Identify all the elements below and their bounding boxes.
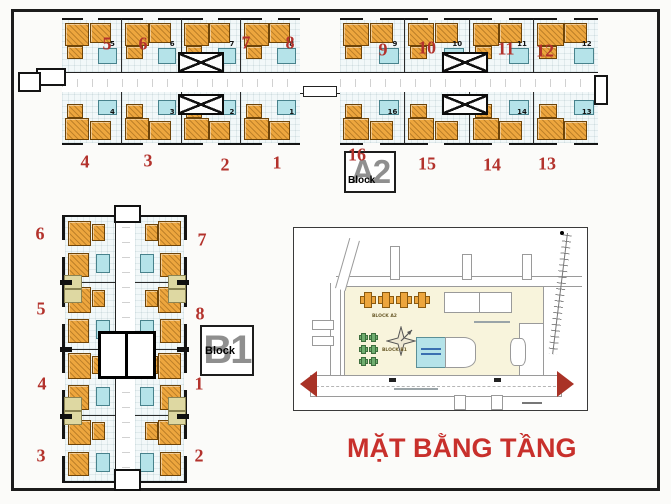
furniture-block — [209, 121, 230, 140]
apartment-number-annotation: 7 — [242, 33, 251, 54]
furniture-block — [158, 353, 181, 378]
tiny-text-bar — [474, 321, 510, 323]
stair-core — [442, 52, 488, 73]
building-cross-shape — [414, 292, 430, 308]
a2-connector-corridor — [300, 72, 340, 94]
a2-left-end-structure — [18, 72, 41, 92]
unit-number: 3 — [170, 109, 175, 116]
building-cross-shape — [359, 333, 368, 342]
page-title: MẶT BẰNG TẦNG — [347, 433, 576, 464]
furniture-block — [345, 104, 362, 117]
apartment-number-annotation: 3 — [144, 151, 153, 172]
apartment-number-annotation: 5 — [103, 34, 112, 55]
bathroom-area — [158, 48, 176, 64]
apartment-number-annotation: 8 — [196, 304, 205, 325]
car-mark — [389, 378, 396, 382]
apartment-number-annotation: 16 — [348, 145, 366, 166]
building-cross-shape — [369, 357, 378, 366]
apartment-number-annotation: 6 — [36, 224, 45, 245]
tiny-text-line — [421, 348, 441, 350]
block-b1-label-block-word: Block — [205, 345, 235, 357]
apartment-number-annotation: 2 — [195, 446, 204, 467]
unit-number: 10 — [452, 41, 462, 48]
furniture-block — [370, 121, 393, 140]
furniture-block — [145, 290, 158, 308]
furniture-block — [65, 118, 89, 140]
furniture-block — [410, 104, 427, 117]
unit-number: 1 — [289, 109, 294, 116]
site-building-block-a2 — [360, 290, 432, 310]
road-stub — [462, 254, 472, 280]
a2-corridor — [340, 72, 598, 94]
road-stub — [390, 246, 400, 280]
connector-room — [303, 86, 337, 97]
apartment-number-annotation: 2 — [221, 155, 230, 176]
building-cross-shape — [360, 292, 376, 308]
unit-number: 12 — [582, 41, 592, 48]
furniture-block — [160, 319, 181, 343]
road-stub — [312, 336, 334, 346]
furniture-block — [343, 118, 369, 140]
apartment-number-annotation: 4 — [81, 152, 90, 173]
apartment-number-annotation: 15 — [418, 154, 436, 175]
apartment-unit — [62, 215, 115, 282]
road-arrow-right-icon — [557, 371, 574, 397]
apartment-number-annotation: 3 — [37, 446, 46, 467]
bathroom-area — [574, 48, 594, 64]
a2-wing: 56784321 — [62, 18, 300, 145]
apartment-number-annotation: 6 — [139, 34, 148, 55]
block-a2-label-block-word: Block — [348, 175, 375, 186]
furniture-block — [269, 121, 290, 140]
site-building-block-b1 — [359, 333, 379, 367]
apartment-unit: 5 — [62, 18, 121, 72]
utility-box — [168, 289, 186, 303]
furniture-block — [126, 104, 142, 117]
top-road — [336, 276, 582, 287]
apartment-number-annotation: 7 — [198, 230, 207, 251]
wall-mark — [60, 280, 72, 285]
furniture-block — [345, 46, 362, 59]
furniture-block — [90, 121, 111, 140]
block-b1-label: B1 Block — [200, 325, 254, 376]
wall-mark — [60, 347, 72, 352]
furniture-block — [160, 452, 181, 476]
apartment-unit: 6 — [121, 18, 181, 72]
bathroom-area — [140, 453, 154, 472]
furniture-block — [68, 319, 89, 343]
building-cross-shape — [359, 345, 368, 354]
furniture-block — [564, 121, 587, 140]
a2-corridor — [62, 72, 300, 94]
furniture-block — [125, 118, 149, 140]
furniture-block — [149, 23, 170, 43]
furniture-block — [408, 118, 434, 140]
bathroom-area — [96, 387, 110, 406]
unit-number: 11 — [517, 41, 527, 48]
floor-plan-page: 56784321910111216151413 A2 Block B1 Bloc… — [0, 0, 671, 504]
apartment-number-annotation: 4 — [38, 374, 47, 395]
railway-line — [548, 232, 572, 354]
furniture-block — [92, 422, 105, 440]
site-label-block-a2: BLOCK A2 — [372, 314, 397, 319]
site-label-block-b1: BLOCK B1 — [382, 348, 407, 353]
main-bottom-road — [310, 375, 562, 397]
road-stub — [454, 395, 466, 410]
unit-number: 7 — [230, 41, 235, 48]
unit-number: 9 — [393, 41, 398, 48]
left-road — [330, 283, 341, 378]
furniture-block — [343, 23, 369, 46]
elevator-shaft — [125, 331, 156, 379]
apartment-number-annotation: 5 — [37, 299, 46, 320]
a2-right-end-structure — [594, 75, 608, 105]
furniture-block — [184, 118, 208, 140]
apartment-number-annotation: 1 — [273, 153, 282, 174]
furniture-block — [537, 118, 563, 140]
scale-note-bar — [522, 402, 542, 404]
furniture-block — [158, 221, 181, 246]
building-cross-shape — [369, 345, 378, 354]
apartment-number-annotation: 13 — [538, 154, 556, 175]
apartment-number-annotation: 14 — [483, 155, 501, 176]
stair-core — [178, 52, 224, 73]
furniture-block — [68, 253, 89, 277]
furniture-block — [68, 353, 91, 378]
furniture-block — [184, 23, 208, 46]
building-cross-shape — [369, 333, 378, 342]
utility-box — [64, 289, 82, 303]
site-location-map: BLOCK A2 BLOCK B1 — [293, 227, 588, 411]
wall-mark — [177, 414, 189, 419]
unit-number: 4 — [110, 109, 115, 116]
utility-box — [168, 397, 186, 411]
stair-core — [178, 94, 224, 115]
furniture-block — [145, 224, 158, 242]
wall-mark — [177, 347, 189, 352]
wall-mark — [177, 280, 189, 285]
furniture-block — [209, 23, 230, 43]
road-stub — [491, 395, 503, 410]
apartment-unit — [135, 215, 187, 282]
site-building-white-3 — [479, 292, 512, 313]
apartment-number-annotation: 11 — [497, 39, 514, 60]
elevator-core — [98, 331, 156, 379]
road-stub — [522, 254, 532, 280]
apartment-unit: 9 — [340, 18, 404, 72]
furniture-block — [160, 253, 181, 277]
tiny-text-line — [421, 353, 441, 355]
furniture-block — [499, 121, 522, 140]
apartment-number-annotation: 1 — [195, 374, 204, 395]
furniture-block — [92, 290, 105, 308]
furniture-block — [67, 104, 83, 117]
furniture-block — [473, 118, 499, 140]
apartment-unit: 1 — [240, 92, 300, 145]
bathroom-area — [96, 453, 110, 472]
bathroom-area — [96, 254, 110, 273]
apartment-number-annotation: 9 — [379, 40, 388, 61]
b1-bottom-stair-stub — [114, 469, 141, 491]
floor-plan-block-b1 — [62, 215, 187, 483]
car-mark — [494, 378, 501, 382]
wall-mark — [60, 414, 72, 419]
bathroom-area — [140, 387, 154, 406]
building-cross-shape — [359, 357, 368, 366]
apartment-unit: 16 — [340, 92, 404, 145]
apartment-number-annotation: 8 — [286, 33, 295, 54]
unit-number: 6 — [170, 41, 175, 48]
unit-number: 14 — [517, 109, 527, 116]
apartment-number-annotation: 10 — [418, 38, 436, 59]
stair-core — [442, 94, 488, 115]
apartment-number-annotation: 12 — [536, 41, 554, 62]
furniture-block — [246, 104, 262, 117]
site-building-white-2 — [444, 292, 480, 313]
furniture-block — [68, 221, 91, 246]
furniture-block — [435, 121, 458, 140]
furniture-block — [539, 104, 556, 117]
unit-number: 2 — [230, 109, 235, 116]
road-stub — [312, 320, 334, 330]
unit-number: 13 — [582, 109, 592, 116]
road-arrow-left-icon — [300, 371, 317, 397]
furniture-block — [145, 422, 158, 440]
a2-wing: 910111216151413 — [340, 18, 598, 145]
furniture-block — [149, 121, 170, 140]
road-name-bar — [394, 388, 438, 390]
b1-top-stair-stub — [114, 205, 141, 223]
bathroom-area — [140, 254, 154, 273]
site-building-white-4 — [510, 338, 526, 366]
unit-number: 16 — [388, 109, 398, 116]
site-building-white-1 — [445, 337, 476, 368]
site-building-commercial — [416, 337, 447, 368]
utility-box — [64, 397, 82, 411]
furniture-block — [92, 224, 105, 242]
furniture-block — [68, 452, 89, 476]
furniture-block — [473, 23, 499, 46]
furniture-block — [244, 118, 268, 140]
apartment-unit: 3 — [121, 92, 181, 145]
building-cross-shape — [378, 292, 394, 308]
furniture-block — [65, 23, 89, 46]
apartment-unit: 13 — [533, 92, 598, 145]
furniture-block — [67, 46, 83, 59]
building-cross-shape — [396, 292, 412, 308]
apartment-unit: 4 — [62, 92, 121, 145]
railway-dot — [560, 231, 564, 235]
